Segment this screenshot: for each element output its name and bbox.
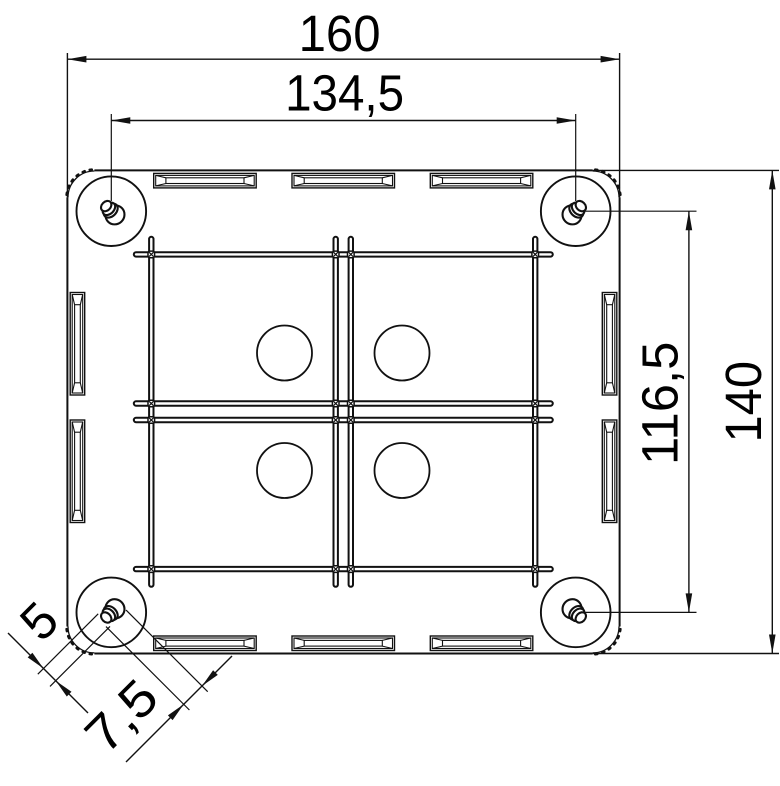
svg-text:116,5: 116,5 — [632, 342, 689, 466]
svg-text:140: 140 — [715, 361, 772, 443]
svg-text:134,5: 134,5 — [285, 65, 404, 122]
svg-text:160: 160 — [299, 5, 381, 62]
